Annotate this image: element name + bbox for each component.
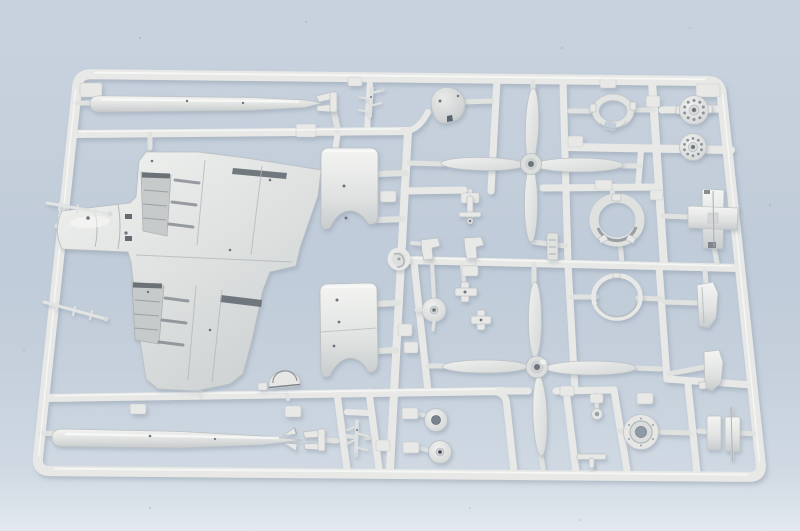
runner-h9-stub — [347, 412, 369, 413]
part-eyelet — [592, 409, 603, 420]
photo-model-kit-sprue — [0, 0, 800, 531]
part-gate-boss — [388, 248, 411, 271]
part-crankcase-disc-2 — [680, 134, 707, 161]
part-exhaust-stub — [547, 233, 558, 260]
part-wheel-hub-housing — [624, 415, 659, 450]
runner-v4 — [563, 81, 568, 264]
runner-h4a — [404, 190, 464, 191]
sprue-photo-canvas — [0, 0, 800, 531]
part-spinner-cone — [431, 88, 465, 124]
wing-wheel-well-upper — [141, 172, 171, 236]
